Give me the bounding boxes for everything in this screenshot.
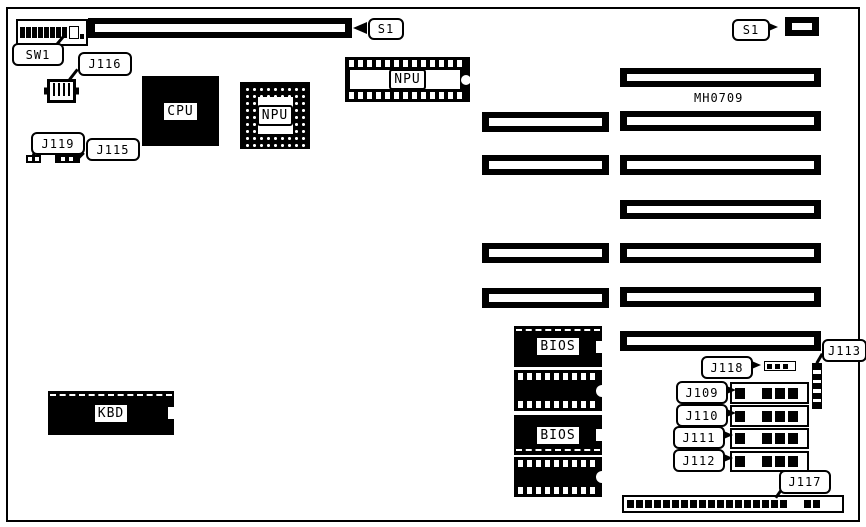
npu-socket-center: NPU: [258, 97, 293, 133]
callout-s1-top-label: S1: [378, 23, 394, 35]
jumper-block-j111: [730, 428, 809, 449]
jumper-pin: [775, 456, 785, 467]
callout-j109: J109: [676, 381, 728, 404]
edge-connector-top: [88, 18, 352, 38]
header-pin: [708, 500, 715, 508]
npu-socket: NPU: [240, 82, 310, 149]
jumper-pin: [788, 456, 798, 467]
connector-s1: [785, 17, 819, 36]
slot-stripe: [489, 249, 602, 257]
jumper-j113: [812, 363, 822, 409]
cpu-chip: CPU: [142, 76, 219, 146]
expansion-slot: [620, 200, 821, 219]
header-pin: [735, 500, 742, 508]
connector-j116-tab-right: [75, 88, 79, 95]
connector-j116-tab-left: [44, 88, 48, 95]
chip-notch: [596, 341, 604, 353]
cpu-label: CPU: [164, 103, 196, 120]
npu-socket-label: NPU: [257, 105, 293, 126]
jumper-pin: [788, 388, 798, 399]
chip-dash-line: [516, 449, 600, 451]
switch-segment: [50, 27, 55, 38]
connector-j116-pins: [53, 83, 70, 96]
jumper-j118: [764, 361, 796, 371]
slot-stripe: [627, 206, 814, 213]
jumper-block-j112: [730, 451, 809, 472]
callout-j119-label: J119: [42, 138, 75, 150]
header-pin: [813, 500, 820, 508]
chip-notch: [168, 407, 176, 419]
npu-chip-pins-top: [349, 60, 462, 67]
jumper-pin: [61, 157, 65, 161]
switch-segment: [32, 27, 37, 38]
jumper-pin: [735, 456, 745, 467]
chip-pins-top: [518, 373, 598, 380]
expansion-slot: [620, 155, 821, 175]
jumper-pin: [28, 157, 32, 161]
slot-stripe: [627, 337, 814, 345]
rom-chip-2: [514, 457, 602, 497]
expansion-slot: [620, 111, 821, 131]
chip-notch: [596, 385, 608, 397]
expansion-slot: [482, 155, 609, 175]
motherboard-diagram: SW1 S1 S1 J116 CPU NPU N: [0, 0, 866, 527]
header-pin: [726, 500, 733, 508]
slot-stripe: [489, 118, 602, 126]
slot-stripe: [627, 293, 814, 301]
slot-stripe: [627, 117, 814, 125]
slot-stripe: [489, 161, 602, 169]
callout-j112: J112: [673, 449, 725, 472]
edge-connector-stripe: [95, 24, 345, 32]
header-pin: [636, 500, 643, 508]
callout-j116: J116: [78, 52, 132, 76]
jumper-pin: [69, 157, 73, 161]
callout-j113-label: J113: [828, 345, 861, 357]
switch-segment: [44, 27, 49, 38]
header-pin: [627, 500, 634, 508]
callout-s1-right: S1: [732, 19, 770, 41]
callout-j111-label: J111: [683, 432, 716, 444]
callout-j115-label: J115: [97, 144, 130, 156]
expansion-slot: [620, 68, 821, 87]
bios-chip-1-label: BIOS: [537, 338, 578, 355]
kbd-chip-label: KBD: [95, 405, 127, 422]
jumper-pin: [762, 411, 772, 422]
callout-j111: J111: [673, 426, 725, 449]
switch-segment: [20, 27, 25, 38]
slot-stripe: [489, 294, 602, 302]
callout-j110: J110: [676, 404, 728, 427]
callout-j117: J117: [779, 470, 831, 494]
callout-j112-label: J112: [683, 455, 716, 467]
connector-s1-stripe: [792, 23, 812, 30]
bios-chip-2-label: BIOS: [537, 427, 578, 444]
chip-pins-top: [518, 460, 598, 467]
header-pin: [804, 500, 811, 508]
jumper-pin: [767, 364, 772, 369]
jumper-block-j109: [730, 382, 809, 404]
expansion-slot: [482, 243, 609, 263]
callout-s1-right-label: S1: [743, 24, 759, 36]
chip-dash-line: [50, 394, 172, 396]
chip-pins-bottom: [518, 487, 598, 494]
jumper-pin: [813, 402, 821, 408]
slot-stripe: [627, 161, 814, 169]
npu-chip-label: NPU: [389, 69, 425, 90]
slot-stripe: [627, 74, 814, 81]
expansion-slot: [482, 288, 609, 308]
switch-corner-mark: [80, 34, 84, 39]
header-pin: [780, 500, 787, 508]
npu-chip-pins-bottom: [349, 92, 462, 99]
callout-j110-label: J110: [686, 410, 719, 422]
callout-j115: J115: [86, 138, 140, 161]
header-pin: [672, 500, 679, 508]
rom-chip-1: [514, 370, 602, 411]
jumper-pin: [775, 433, 785, 444]
header-pin: [663, 500, 670, 508]
header-pin: [762, 500, 769, 508]
jumper-block-j110: [730, 405, 809, 427]
npu-chip: NPU: [345, 57, 470, 102]
callout-j117-label: J117: [789, 476, 822, 488]
jumper-pin: [775, 411, 785, 422]
dip-switch-sw1: [16, 19, 88, 46]
header-pin: [645, 500, 652, 508]
expansion-slot: [620, 331, 821, 351]
callout-j119: J119: [31, 132, 85, 155]
kbd-chip: KBD: [48, 391, 174, 435]
arrow-left-icon: [353, 22, 367, 34]
connector-j116: [47, 79, 76, 103]
jumper-pin: [762, 388, 772, 399]
chip-pins-bottom: [518, 401, 598, 408]
expansion-slot: [482, 112, 609, 132]
callout-j118: J118: [701, 356, 753, 379]
switch-segment: [38, 27, 43, 38]
switch-end-cap: [69, 26, 79, 39]
bios-chip-1: BIOS: [514, 326, 602, 367]
jumper-pin: [762, 433, 772, 444]
jumper-pin: [775, 388, 785, 399]
bios-chip-2: BIOS: [514, 415, 602, 455]
jumper-pin: [762, 456, 772, 467]
jumper-pin: [788, 411, 798, 422]
callout-j118-label: J118: [711, 362, 744, 374]
board-id-text: MH0709: [694, 91, 743, 105]
callout-j109-label: J109: [686, 387, 719, 399]
jumper-pin: [788, 433, 798, 444]
expansion-slot: [620, 287, 821, 307]
jumper-pin: [735, 388, 745, 399]
callout-s1-top: S1: [368, 18, 404, 40]
header-pin: [771, 500, 778, 508]
callout-j113: J113: [822, 339, 866, 362]
chip-dash-line: [516, 329, 600, 331]
chip-notch: [596, 471, 608, 483]
header-pin: [717, 500, 724, 508]
jumper-pin: [735, 411, 745, 422]
header-pin: [699, 500, 706, 508]
header-pin: [744, 500, 751, 508]
header-pin: [690, 500, 697, 508]
header-pin: [681, 500, 688, 508]
callout-sw1: SW1: [12, 43, 64, 66]
jumper-pin: [735, 433, 745, 444]
header-pin: [753, 500, 760, 508]
jumper-pin: [783, 364, 788, 369]
slot-stripe: [627, 249, 814, 257]
jumper-pin: [35, 157, 39, 161]
header-pin: [654, 500, 661, 508]
expansion-slot: [620, 243, 821, 263]
callout-j116-label: J116: [89, 58, 122, 70]
callout-sw1-label: SW1: [26, 49, 51, 61]
pin-header-j117: [622, 495, 844, 513]
npu-chip-notch: [461, 75, 471, 85]
chip-notch: [596, 429, 604, 441]
switch-segment: [26, 27, 31, 38]
jumper-pin: [775, 364, 780, 369]
